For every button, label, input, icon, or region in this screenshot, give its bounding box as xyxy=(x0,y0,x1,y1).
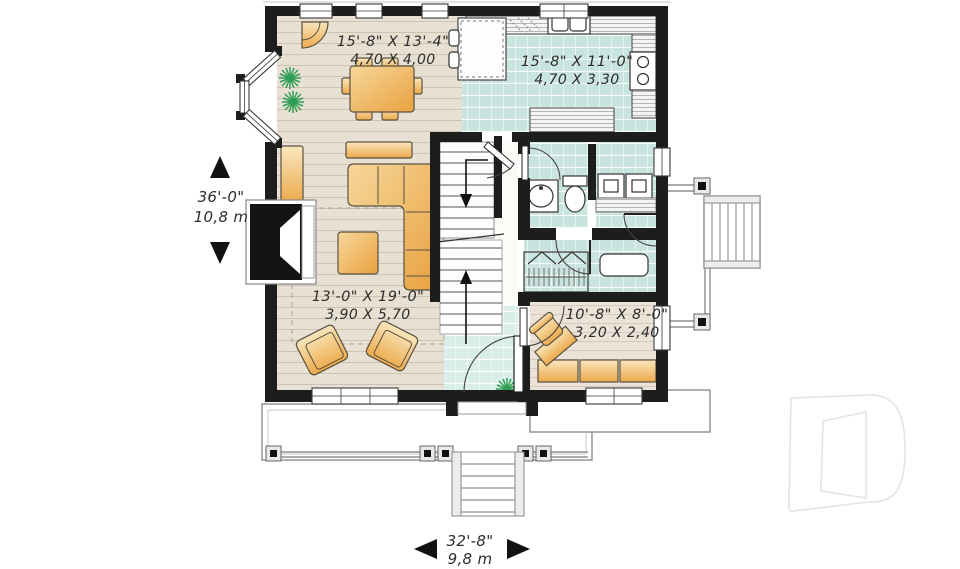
desk-section xyxy=(580,360,618,382)
kitchen-window xyxy=(540,4,588,18)
width-imperial: 32'-8" xyxy=(447,532,494,550)
desk-section xyxy=(620,360,656,382)
fireplace xyxy=(246,200,316,284)
dining-window xyxy=(422,4,448,18)
plant-icon xyxy=(282,91,304,113)
island-stool xyxy=(449,30,459,46)
stove-icon xyxy=(630,52,656,90)
dim-arrow-left-icon xyxy=(414,539,437,559)
depth-imperial: 36'-0" xyxy=(198,188,245,206)
living-size-imperial: 13'-0" X 19'-0" xyxy=(312,289,424,305)
width-dimension: 32'-8" 9,8 m xyxy=(414,532,530,568)
floor-plan-page: 15'-8" X 13'-4" 4,70 X 4,00 15'-8" X 11'… xyxy=(0,0,960,569)
depth-metric: 10,8 m xyxy=(194,208,249,226)
kitchen-island xyxy=(449,18,506,80)
office-size-metric: 3,20 X 2,40 xyxy=(574,325,659,341)
width-metric: 9,8 m xyxy=(448,550,493,568)
toilet-icon xyxy=(563,176,587,212)
kitchen-size-imperial: 15'-8" X 11'-0" xyxy=(521,54,633,70)
bath-fixtures xyxy=(524,176,587,212)
island-stool xyxy=(449,52,459,68)
dining-window xyxy=(300,4,332,18)
living-window xyxy=(312,388,398,404)
coffee-table xyxy=(338,232,378,274)
dim-arrow-down-icon xyxy=(210,242,230,264)
living-size-metric: 3,90 X 5,70 xyxy=(325,307,410,323)
floor-plan-drawing: 15'-8" X 13'-4" 4,70 X 4,00 15'-8" X 11'… xyxy=(0,0,960,569)
kitchen-peninsula xyxy=(530,108,614,132)
bench xyxy=(600,254,648,276)
dining-size-imperial: 15'-8" X 13'-4" xyxy=(337,34,449,50)
laundry-fixtures xyxy=(596,174,656,212)
dim-arrow-right-icon xyxy=(507,539,530,559)
dining-size-metric: 4,70 X 4,00 xyxy=(350,52,435,68)
cabinet xyxy=(281,146,303,204)
front-steps xyxy=(452,452,524,516)
depth-dimension: 36'-0" 10,8 m xyxy=(194,156,249,264)
bay-window xyxy=(240,51,281,145)
plant-icon xyxy=(279,67,301,89)
sofa-table xyxy=(346,142,412,158)
laundry-window xyxy=(654,148,670,176)
side-deck xyxy=(664,178,760,330)
dim-arrow-up-icon xyxy=(210,156,230,178)
laundry-counter xyxy=(596,198,656,212)
office-size-imperial: 10'-8" X 8'-0" xyxy=(566,307,669,323)
deck-stairs xyxy=(704,196,760,268)
kitchen-size-metric: 4,70 X 3,30 xyxy=(534,72,619,88)
d-monogram-logo-icon xyxy=(789,395,905,511)
dining-window xyxy=(356,4,382,18)
office-window xyxy=(586,388,642,404)
